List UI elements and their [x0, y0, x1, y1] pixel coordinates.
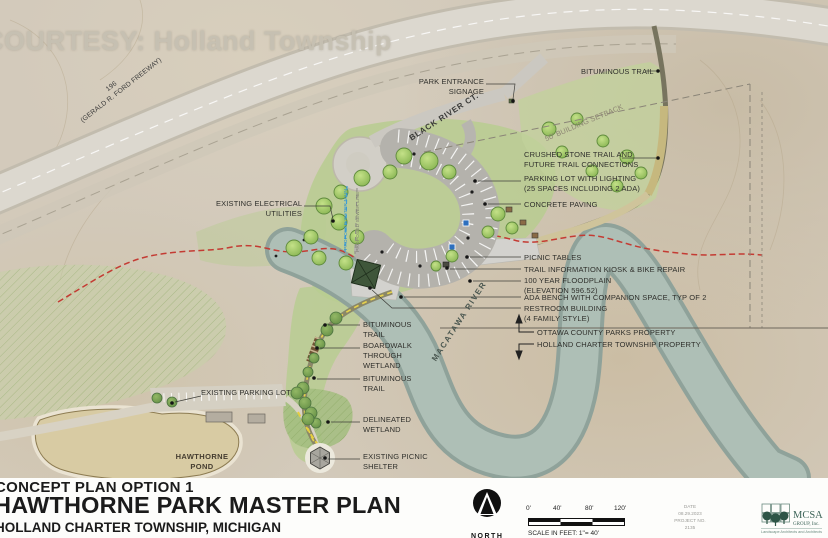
pond-label: HAWTHORNEPOND [166, 452, 238, 472]
callout-boardwalk: BOARDWALKTHROUGHWETLAND [363, 341, 412, 371]
callout-ada-bench: ADA BENCH WITH COMPANION SPACE, TYP OF 2 [524, 293, 707, 303]
north-label: NORTH [471, 533, 503, 538]
callout-picnic-tables: PICNIC TABLES [524, 253, 582, 263]
callout-delineated-wetland: DELINEATEDWETLAND [363, 415, 411, 435]
title-block: CONCEPT PLAN OPTION 1 HAWTHORNE PARK MAS… [0, 478, 828, 538]
project-label: PROJECT NO. [657, 518, 723, 525]
callout-restroom: RESTROOM BUILDING(4 FAMILY STYLE) [524, 304, 607, 324]
callout-crushed-stone: CRUSHED STONE TRAIL ANDFUTURE TRAIL CONN… [524, 150, 638, 170]
sheet-title: HAWTHORNE PARK MASTER PLAN [0, 492, 401, 519]
callout-ottawa-property: OTTAWA COUNTY PARKS PROPERTY [537, 328, 676, 338]
date-value: 08.29.2023 [657, 511, 723, 518]
scale-tick-40: 40' [553, 505, 561, 512]
callout-concrete-paving: CONCRETE PAVING [524, 200, 598, 210]
date-project-block: DATE 08.29.2023 PROJECT NO. 2135 [657, 504, 723, 532]
kiosk-icon [443, 262, 449, 267]
scale-tick-120: 120' [614, 505, 626, 512]
callout-existing-shelter: EXISTING PICNICSHELTER [363, 452, 428, 472]
firm-tagline: Landscape Architects and Architects [761, 530, 822, 534]
firm-name: MCSA [793, 510, 823, 521]
callout-park-entrance: PARK ENTRANCESIGNAGE [402, 77, 484, 97]
mcsa-logo: MCSA GROUP, Inc. Landscape Architects an… [760, 492, 828, 538]
callout-kiosk: TRAIL INFORMATION KIOSK & BIKE REPAIR [524, 265, 685, 275]
callout-existing-parking: EXISTING PARKING LOT [201, 388, 291, 398]
callout-bituminous-trail-s2: BITUMINOUSTRAIL [363, 374, 412, 394]
site-plan-map: COURTESY: Holland Township 196(GERALD R.… [0, 0, 828, 478]
callout-parking-lot: PARKING LOT WITH LIGHTING(25 SPACES INCL… [524, 174, 640, 194]
concept-plan-sheet: COURTESY: Holland Township 196(GERALD R.… [0, 0, 828, 538]
scale-tick-80: 80' [585, 505, 593, 512]
callout-electrical: EXISTING ELECTRICALUTILITIES [216, 199, 302, 219]
scale-note: SCALE IN FEET: 1"= 40' [528, 530, 599, 537]
scale-bar [528, 518, 628, 528]
scale-tick-0: 0' [526, 505, 531, 512]
north-arrow-icon [472, 488, 502, 520]
firm-suffix: GROUP, Inc. [793, 522, 820, 527]
courtesy-watermark: COURTESY: Holland Township [0, 26, 392, 57]
callout-township-property: HOLLAND CHARTER TOWNSHIP PROPERTY [537, 340, 701, 350]
sewer-line-label: PROPOSED SEWER LINE [356, 192, 362, 252]
date-label: DATE [657, 504, 723, 511]
logo-trees [763, 512, 789, 527]
callout-bituminous-trail-s1: BITUMINOUSTRAIL [363, 320, 412, 340]
sheet-subtitle: HOLLAND CHARTER TOWNSHIP, MICHIGAN [0, 520, 281, 535]
project-value: 2135 [657, 525, 723, 532]
restroom-building [351, 259, 380, 288]
water-main-label: PROPOSED WATER MAIN [344, 189, 350, 250]
existing-picnic-shelter [305, 443, 335, 473]
callout-bituminous-trail-ne: BITUMINOUS TRAIL [581, 67, 654, 77]
